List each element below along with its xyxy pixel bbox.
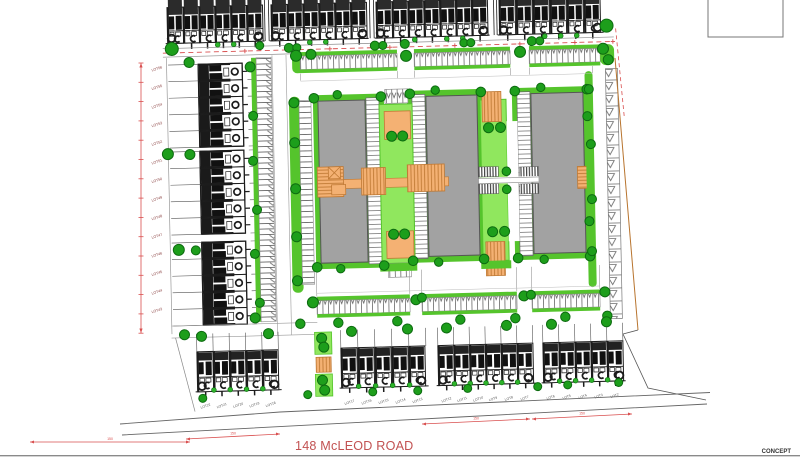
- svg-text:150: 150: [579, 412, 585, 416]
- svg-text:CONCEPT: CONCEPT: [762, 449, 792, 455]
- svg-text:150: 150: [473, 417, 479, 421]
- svg-text:150: 150: [107, 437, 113, 441]
- svg-text:148 McLEOD ROAD: 148 McLEOD ROAD: [295, 439, 413, 453]
- svg-text:150: 150: [230, 432, 236, 436]
